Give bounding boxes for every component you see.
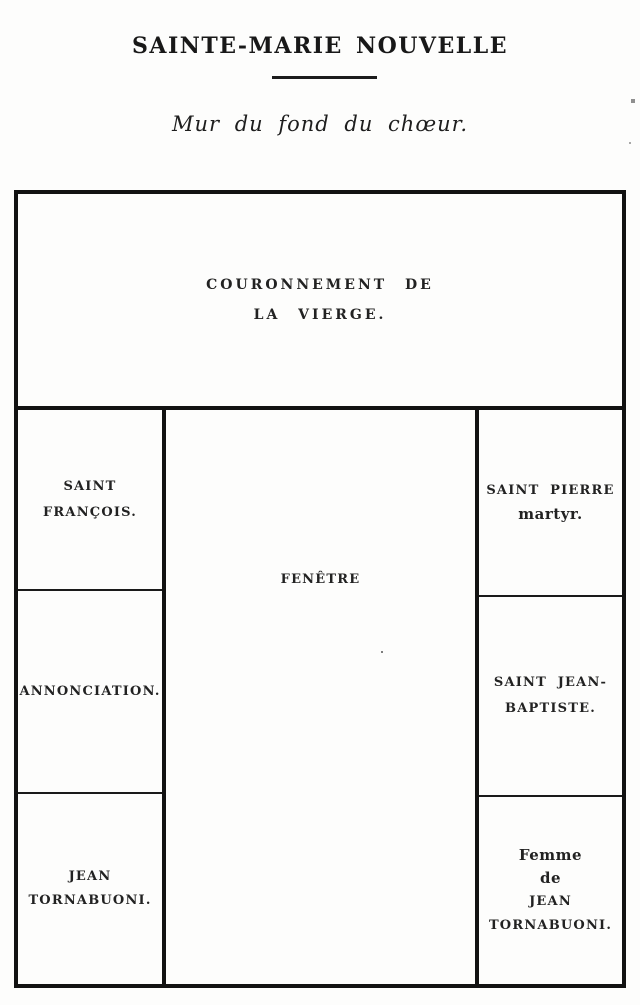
right-column: SAINT PIERRE martyr. SAINT JEAN- BAPTIST… [479,410,622,984]
panel-annonciation: ANNONCIATION. [18,591,162,794]
panel-couronnement: COURONNEMENT DE LA VIERGE. [18,194,622,410]
annonciation-label: ANNONCIATION. [19,679,160,705]
scan-speck [629,142,631,144]
scan-speck [631,99,635,103]
page-subtitle: Mur du fond du chœur. [0,112,640,136]
fenetre-label: FENÊTRE [281,567,361,593]
femme-label-line1: Femme [519,844,582,867]
couronnement-label-line1: COURONNEMENT DE [206,270,434,300]
choir-wall-diagram: COURONNEMENT DE LA VIERGE. SAINT FRANÇOI… [14,190,626,988]
scanned-book-page: SAINTE-MARIE NOUVELLE Mur du fond du chœ… [0,0,640,1005]
panel-saint-jean-baptiste: SAINT JEAN- BAPTISTE. [479,597,622,797]
left-column: SAINT FRANÇOIS. ANNONCIATION. JEAN TORNA… [18,410,162,984]
femme-label-line3: JEAN [529,890,572,914]
panel-fenetre: FENÊTRE [162,410,479,984]
panel-saint-pierre: SAINT PIERRE martyr. [479,410,622,597]
title-divider-rule [272,76,377,79]
panel-jean-tornabuoni: JEAN TORNABUONI. [18,794,162,984]
saint-jean-baptiste-label-line2: BAPTISTE. [505,696,596,722]
scan-speck [381,651,383,653]
page-title: SAINTE-MARIE NOUVELLE [0,33,640,59]
couronnement-label-line2: LA VIERGE. [254,300,387,330]
jean-tornabuoni-label-line2: TORNABUONI. [28,889,151,913]
panel-femme-de-jean-tornabuoni: Femme de JEAN TORNABUONI. [479,797,622,984]
femme-label-line4: TORNABUONI. [489,914,612,938]
jean-tornabuoni-label-line1: JEAN [69,865,112,889]
saint-pierre-label-line1: SAINT PIERRE [486,479,614,503]
saint-pierre-label-line2: martyr. [518,503,582,526]
femme-label-line2: de [540,867,561,890]
lower-section: SAINT FRANÇOIS. ANNONCIATION. JEAN TORNA… [18,410,622,984]
saint-jean-baptiste-label-line1: SAINT JEAN- [494,670,607,696]
panel-saint-francois: SAINT FRANÇOIS. [18,410,162,591]
saint-francois-label: SAINT FRANÇOIS. [18,474,162,526]
